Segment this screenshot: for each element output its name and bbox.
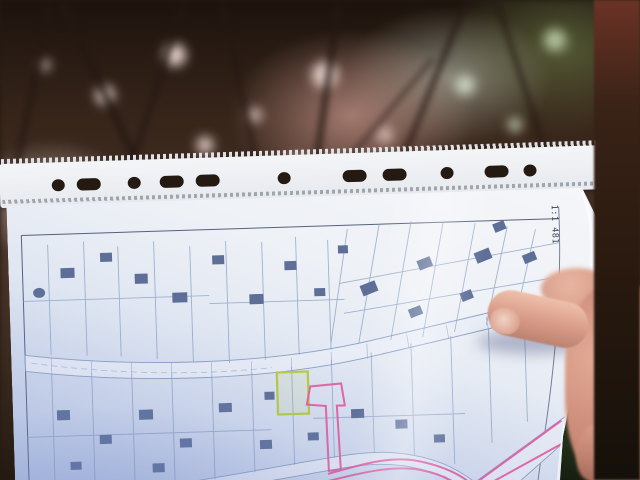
building-footprint [338, 245, 348, 253]
road-bottom [44, 449, 475, 480]
building-footprint [459, 289, 473, 302]
building-footprint [70, 462, 81, 470]
building-footprint [314, 288, 325, 296]
building-footprint [100, 253, 112, 262]
building-footprint [249, 294, 263, 304]
binder-hole [52, 179, 65, 191]
building-footprint [474, 248, 493, 264]
building-footprint [135, 274, 148, 284]
branch [11, 1, 53, 178]
binder-hole [128, 177, 141, 189]
building-footprint [522, 251, 537, 264]
map-scale-label: 1:1 481 [549, 205, 560, 245]
building-footprint [180, 438, 192, 447]
building-footprint [492, 220, 506, 233]
binder-hole [196, 174, 220, 187]
building-footprint [139, 409, 153, 419]
dark-frame-bar [594, 0, 640, 480]
binder-hole [277, 172, 290, 184]
building-footprint [60, 268, 74, 278]
building-footprint [212, 255, 224, 264]
sky-bokeh-lights [40, 60, 50, 70]
photo-scene: 1:1 481 [0, 0, 640, 480]
building-footprint [219, 403, 232, 412]
building-footprint [434, 434, 445, 442]
building-footprint [408, 305, 423, 318]
highlighted-plot-green [277, 372, 309, 415]
binder-hole [440, 167, 453, 179]
binder-hole [523, 164, 536, 176]
building-footprint [351, 409, 364, 418]
binder-hole [160, 175, 184, 188]
building-footprint [260, 440, 272, 449]
building-footprint [57, 410, 70, 420]
branch [495, 3, 548, 156]
building-footprint [284, 261, 296, 270]
building-footprint [308, 432, 319, 440]
building-footprint [172, 292, 187, 302]
binder-hole [342, 170, 366, 183]
building-footprint [360, 280, 379, 296]
binder-hole [382, 168, 406, 181]
binder-hole [484, 165, 508, 178]
building-footprint [100, 435, 112, 444]
building-footprint [395, 419, 407, 428]
building-footprint [264, 392, 274, 400]
pond [33, 288, 45, 298]
building-footprint [153, 463, 165, 472]
buildings [31, 213, 549, 480]
branch [48, 0, 139, 162]
binder-hole [77, 178, 101, 191]
